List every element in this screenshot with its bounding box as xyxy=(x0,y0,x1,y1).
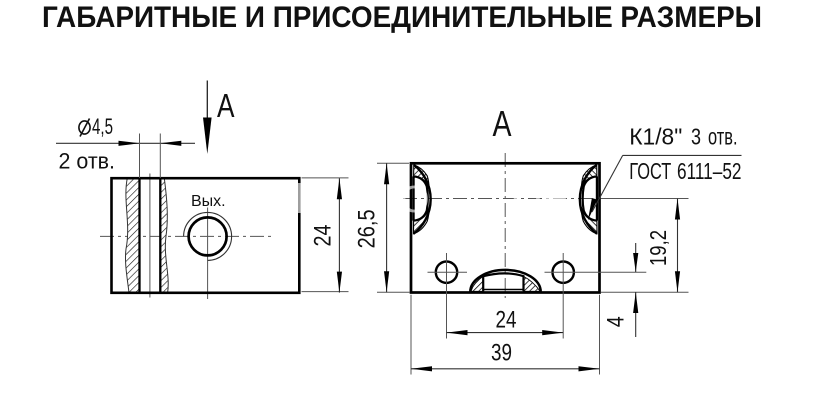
svg-text:А: А xyxy=(493,103,512,144)
svg-text:39: 39 xyxy=(491,340,512,367)
svg-text:К1/8": К1/8" xyxy=(629,124,682,150)
svg-text:отв.: отв. xyxy=(708,124,738,150)
svg-text:26,5: 26,5 xyxy=(354,209,381,248)
svg-text:19,2: 19,2 xyxy=(645,230,671,266)
svg-text:2 отв.: 2 отв. xyxy=(59,149,116,174)
svg-text:6111–52: 6111–52 xyxy=(677,158,742,184)
svg-text:4,5: 4,5 xyxy=(92,114,113,139)
svg-text:ОН: ОН xyxy=(512,179,569,221)
svg-text:О: О xyxy=(400,179,430,221)
svg-text:3: 3 xyxy=(691,124,701,150)
svg-text:А: А xyxy=(217,88,235,125)
svg-text:ГАБАРИТНЫЕ И ПРИСОЕДИНИТЕЛЬНЫЕ: ГАБАРИТНЫЕ И ПРИСОЕДИНИТЕЛЬНЫЕ РАЗМЕРЫ xyxy=(42,1,762,34)
svg-text:Н: Н xyxy=(273,174,305,223)
svg-text:Вых.: Вых. xyxy=(191,193,226,210)
svg-text:24: 24 xyxy=(310,225,337,247)
svg-text:24: 24 xyxy=(496,307,517,334)
svg-text:4: 4 xyxy=(603,316,630,327)
svg-text:ГОСТ: ГОСТ xyxy=(629,158,671,184)
